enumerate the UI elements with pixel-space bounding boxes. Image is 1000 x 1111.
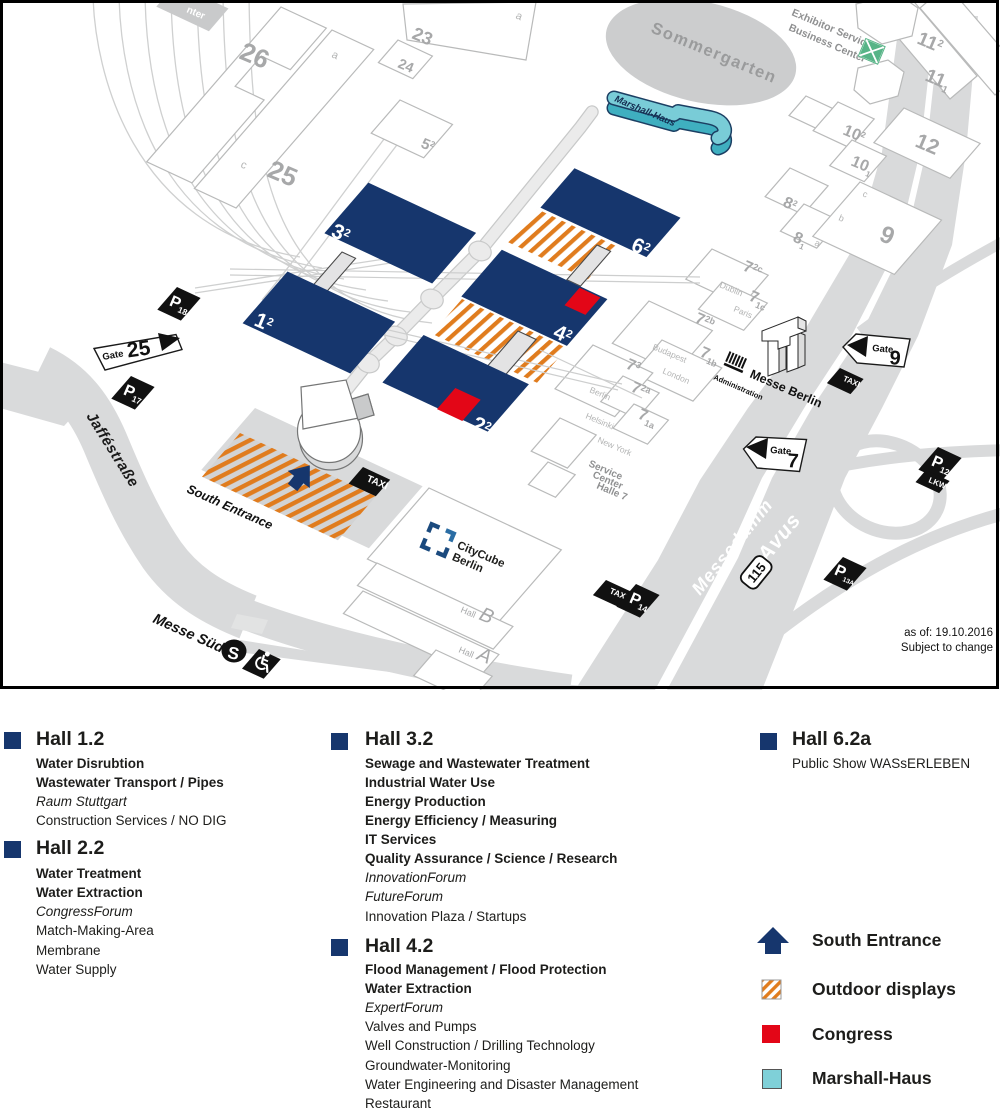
svg-text:9: 9	[889, 347, 902, 370]
svg-text:7: 7	[787, 450, 800, 473]
svg-text:as of: 19.10.2016: as of: 19.10.2016	[904, 627, 993, 639]
svg-text:Subject to change: Subject to change	[901, 642, 993, 654]
svg-text:25: 25	[125, 336, 152, 362]
